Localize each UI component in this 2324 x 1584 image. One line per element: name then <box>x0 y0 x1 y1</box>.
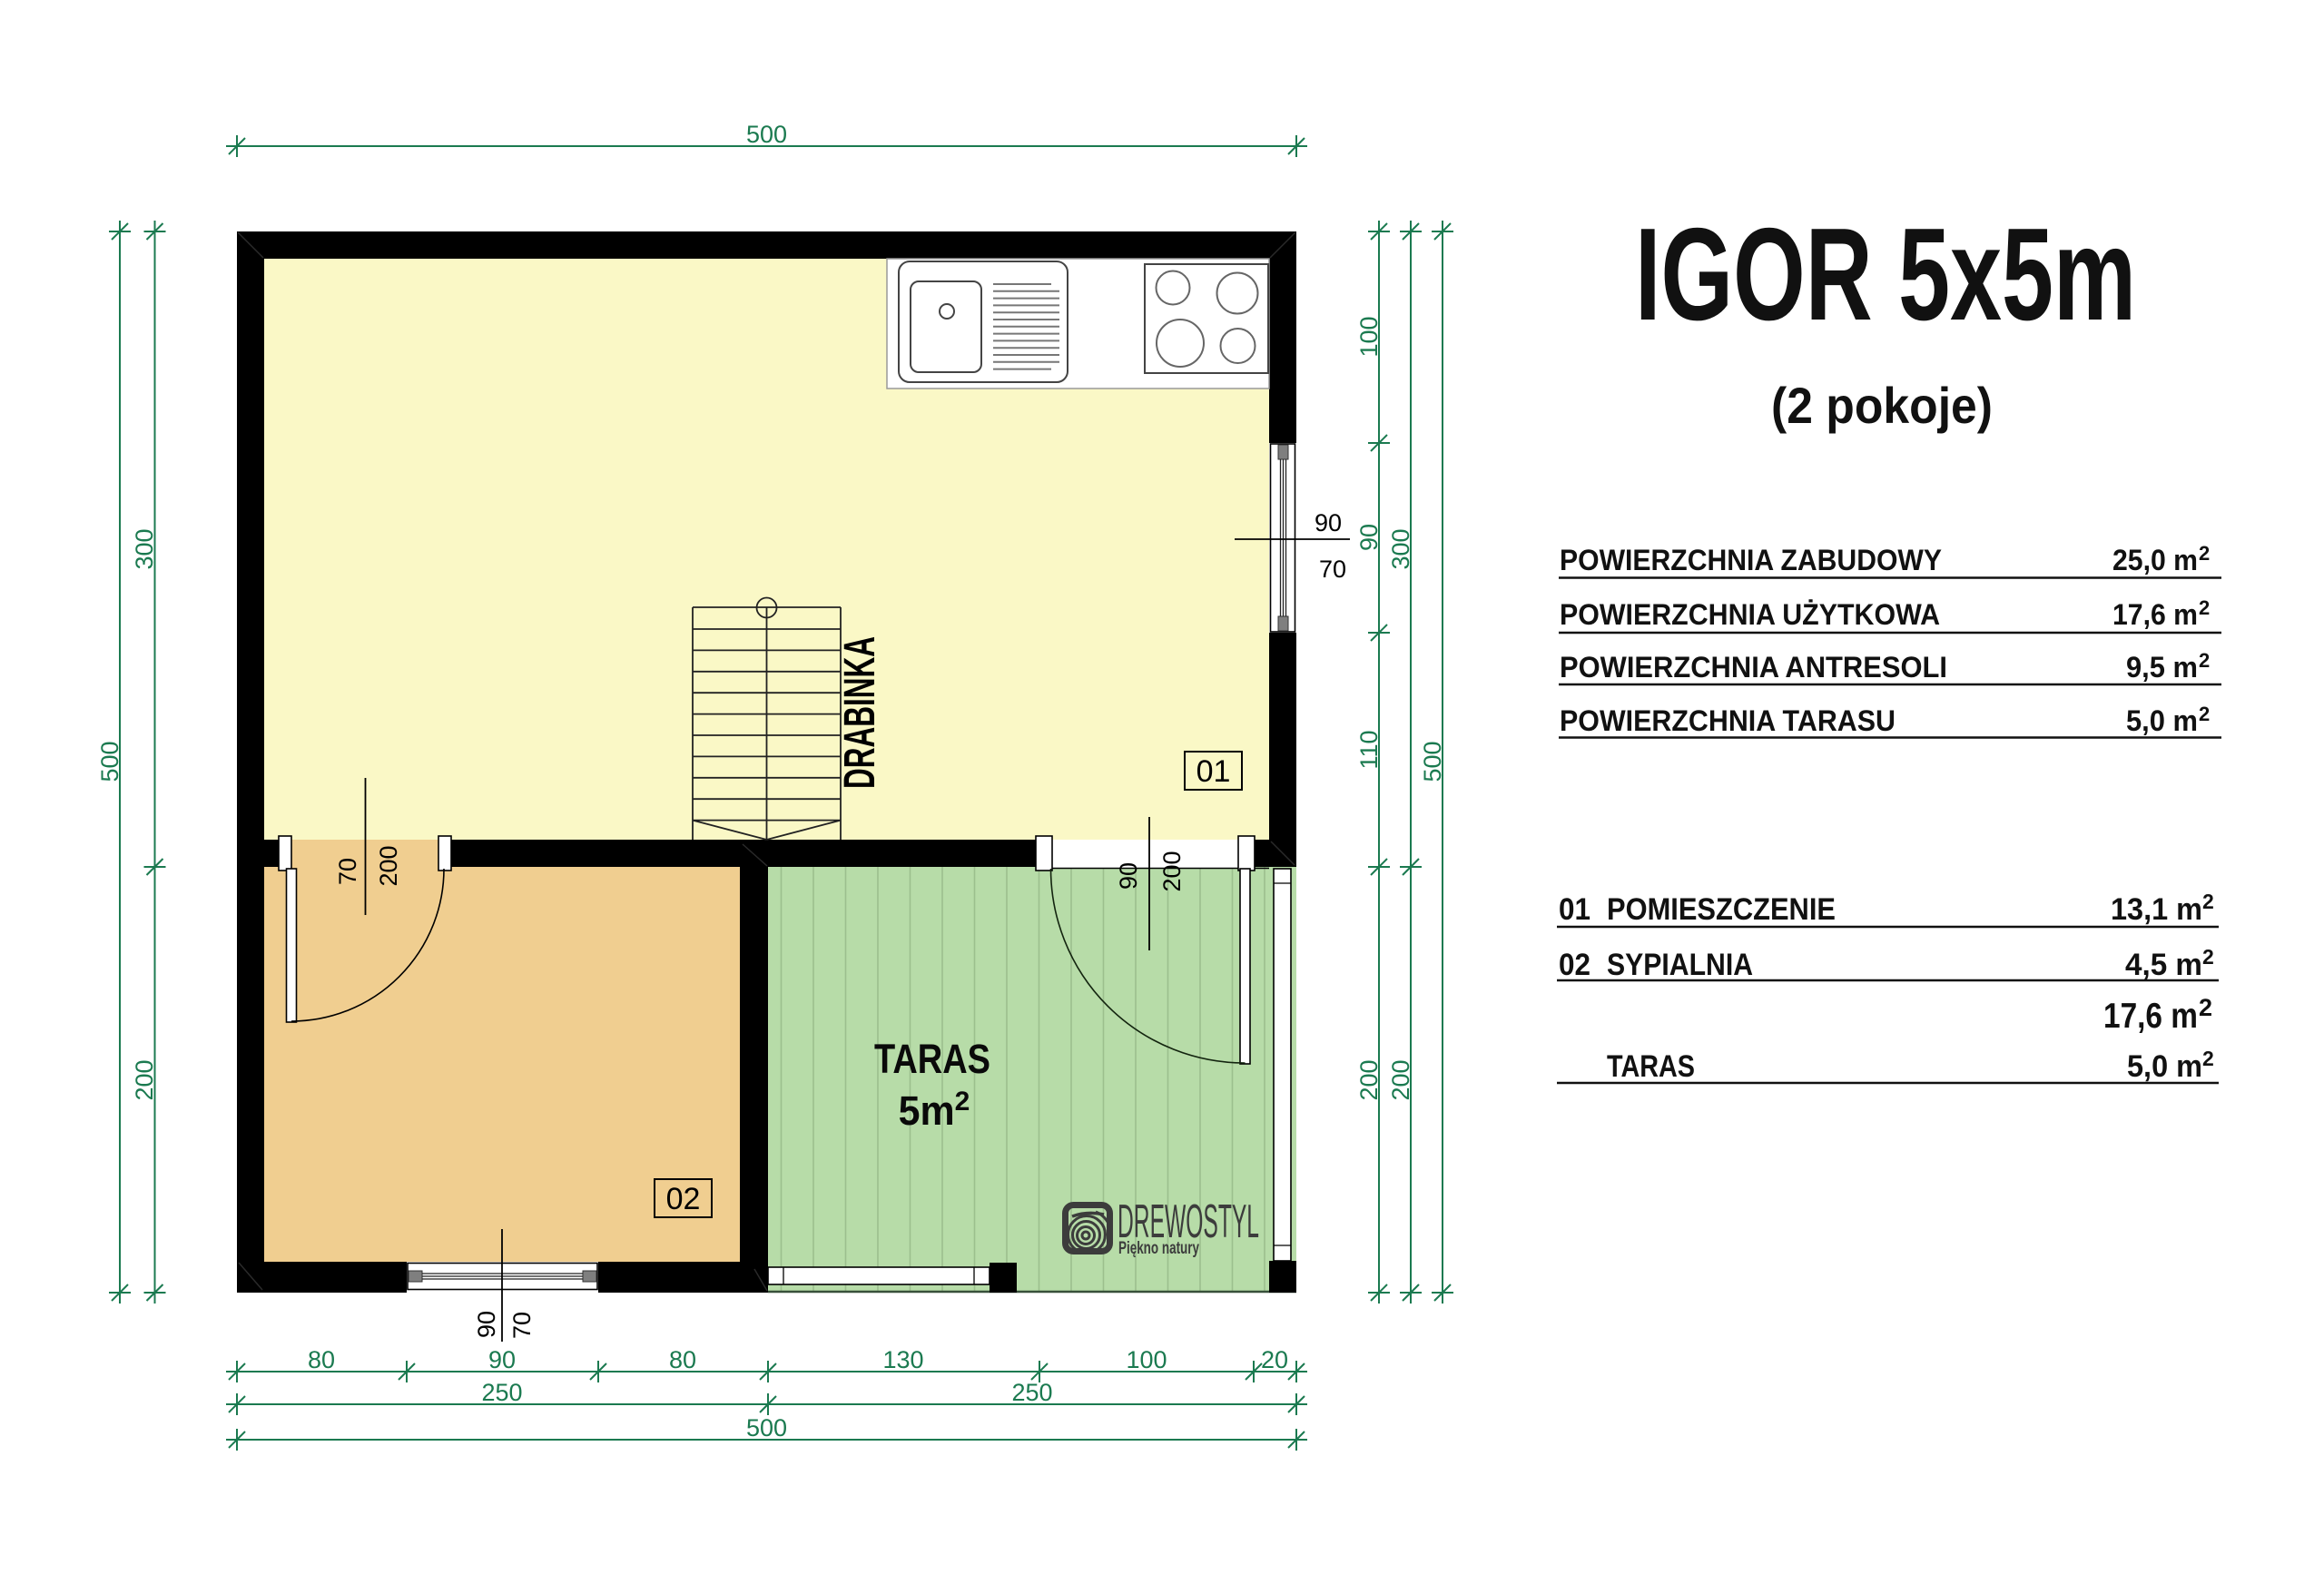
svg-text:500: 500 <box>96 741 123 782</box>
svg-text:500: 500 <box>746 1414 787 1441</box>
svg-text:02: 02 <box>666 1182 701 1216</box>
svg-text:70: 70 <box>1319 556 1346 583</box>
svg-text:02: 02 <box>1559 948 1590 982</box>
svg-text:2: 2 <box>2199 596 2210 619</box>
svg-text:110: 110 <box>1355 730 1383 769</box>
svg-text:80: 80 <box>308 1346 335 1373</box>
svg-text:200: 200 <box>375 845 402 886</box>
svg-text:70: 70 <box>334 858 361 885</box>
svg-text:20: 20 <box>1261 1346 1288 1373</box>
svg-text:500: 500 <box>746 121 787 148</box>
svg-text:17,6 m: 17,6 m <box>2112 598 2198 631</box>
svg-text:SYPIALNIA: SYPIALNIA <box>1607 948 1753 982</box>
svg-text:90: 90 <box>1115 862 1142 890</box>
svg-text:(2 pokoje): (2 pokoje) <box>1771 377 1993 434</box>
svg-text:2: 2 <box>2202 890 2214 913</box>
svg-text:90: 90 <box>488 1346 516 1373</box>
svg-text:300: 300 <box>1387 528 1414 569</box>
svg-text:70: 70 <box>508 1312 536 1339</box>
svg-text:2: 2 <box>2199 994 2212 1021</box>
svg-text:90: 90 <box>1355 524 1383 551</box>
svg-text:250: 250 <box>481 1379 522 1406</box>
svg-text:200: 200 <box>1387 1059 1414 1100</box>
svg-text:80: 80 <box>669 1346 696 1373</box>
svg-text:4,5 m: 4,5 m <box>2125 948 2202 982</box>
svg-text:17,6 m: 17,6 m <box>2103 997 2198 1036</box>
svg-text:Piękno natury: Piękno natury <box>1118 1239 1199 1258</box>
svg-text:200: 200 <box>1355 1059 1383 1100</box>
svg-text:TARAS: TARAS <box>874 1036 990 1082</box>
svg-text:DRABINKA: DRABINKA <box>836 636 884 789</box>
svg-text:5,0 m: 5,0 m <box>2126 704 2198 737</box>
svg-text:9,5 m: 9,5 m <box>2126 651 2198 684</box>
svg-text:90: 90 <box>473 1311 500 1338</box>
svg-text:TARAS: TARAS <box>1607 1049 1695 1084</box>
svg-text:01: 01 <box>1559 892 1590 927</box>
svg-text:130: 130 <box>882 1346 923 1373</box>
svg-text:90: 90 <box>1315 509 1342 536</box>
svg-text:POWIERZCHNIA TARASU: POWIERZCHNIA TARASU <box>1560 704 1896 737</box>
svg-text:2: 2 <box>2202 1047 2214 1070</box>
svg-text:POMIESZCZENIE: POMIESZCZENIE <box>1607 892 1836 927</box>
svg-text:POWIERZCHNIA UŻYTKOWA: POWIERZCHNIA UŻYTKOWA <box>1560 598 1940 631</box>
svg-text:25,0 m: 25,0 m <box>2112 544 2198 576</box>
svg-text:250: 250 <box>1011 1379 1052 1406</box>
svg-text:2: 2 <box>2199 542 2210 565</box>
svg-text:500: 500 <box>1419 741 1446 782</box>
svg-text:IGOR 5x5m: IGOR 5x5m <box>1635 201 2136 348</box>
svg-text:300: 300 <box>131 528 158 569</box>
svg-text:POWIERZCHNIA ZABUDOWY: POWIERZCHNIA ZABUDOWY <box>1560 544 1942 576</box>
svg-text:200: 200 <box>1158 851 1186 891</box>
svg-text:POWIERZCHNIA ANTRESOLI: POWIERZCHNIA ANTRESOLI <box>1560 651 1947 684</box>
svg-text:01: 01 <box>1196 754 1231 789</box>
svg-text:2: 2 <box>2202 945 2214 969</box>
svg-text:5,0 m: 5,0 m <box>2127 1049 2202 1084</box>
svg-text:200: 200 <box>131 1059 158 1100</box>
svg-text:100: 100 <box>1126 1346 1167 1373</box>
svg-text:2: 2 <box>2199 703 2210 725</box>
svg-text:100: 100 <box>1355 316 1383 357</box>
svg-text:13,1 m: 13,1 m <box>2111 892 2202 927</box>
svg-text:2: 2 <box>2199 649 2210 672</box>
